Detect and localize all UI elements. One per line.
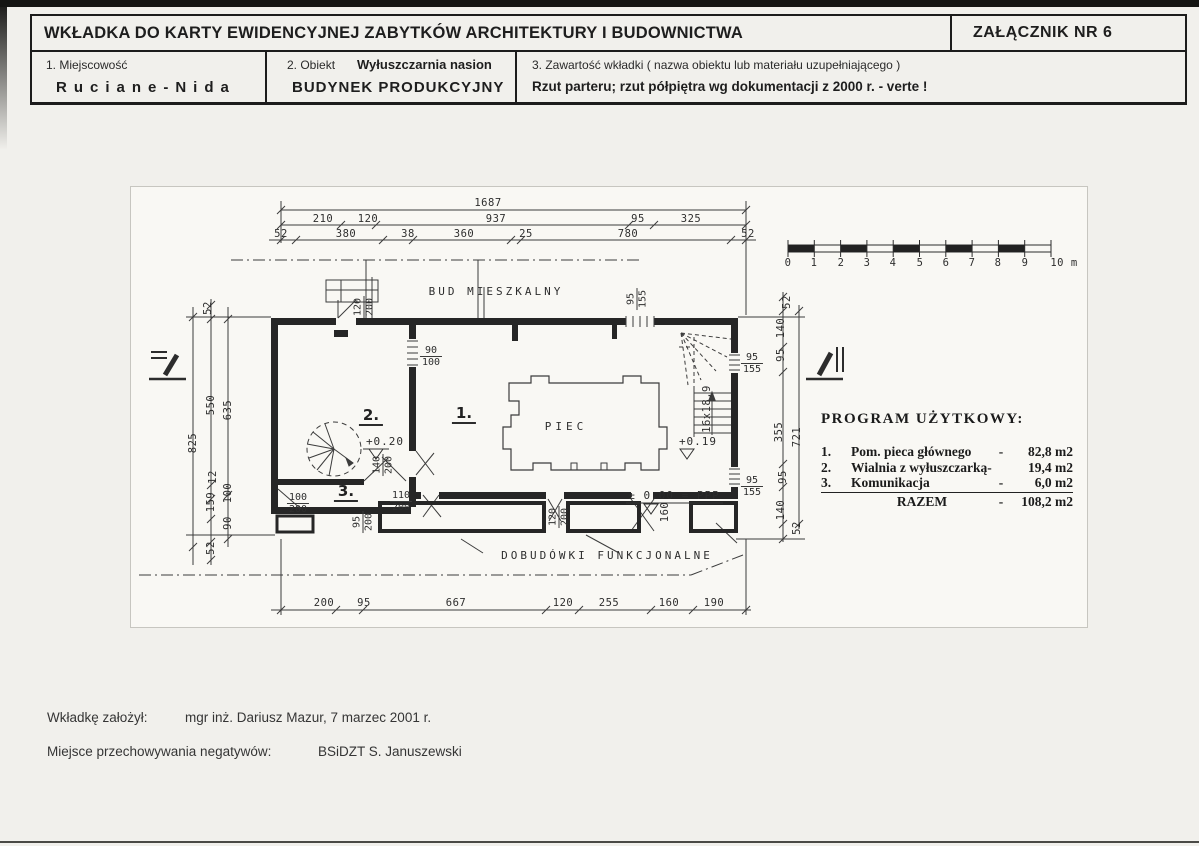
dim-label: 667 bbox=[446, 597, 466, 609]
frac-den: 200 bbox=[559, 506, 571, 528]
row-dash: - bbox=[993, 475, 1009, 491]
field1-label: 1. Miejscowość bbox=[46, 58, 127, 72]
neighbor-building-label: BUD MIESZKALNY bbox=[429, 285, 564, 298]
dim-label: 95 bbox=[775, 348, 787, 362]
dim-label: 52 bbox=[202, 301, 214, 315]
opening-size-90-100: 90100 bbox=[420, 345, 442, 368]
dim-label: 95 bbox=[357, 597, 371, 609]
furnace-detail2 bbox=[601, 463, 607, 470]
program-title: PROGRAM UŻYTKOWY: bbox=[821, 411, 1073, 428]
row-number: 3. bbox=[821, 475, 851, 491]
furnace-label: PIEC bbox=[545, 420, 588, 433]
dim-label: 825 bbox=[187, 433, 199, 453]
header-border-top bbox=[30, 14, 1187, 16]
dim-label: 120 bbox=[358, 213, 378, 225]
door-size-140-200: 140200 bbox=[372, 454, 395, 476]
dim-label: 52 bbox=[205, 541, 217, 555]
dim-label: 159 bbox=[205, 492, 217, 512]
scale-tick: 1 bbox=[811, 257, 818, 269]
scanned-record-card: { "header": { "title": "WKŁADKA DO KARTY… bbox=[0, 0, 1199, 846]
frac-den: 155 bbox=[741, 486, 763, 498]
header-rule-mid bbox=[30, 50, 1187, 52]
room-1-label: 1. bbox=[452, 405, 476, 424]
header-divider-attachment bbox=[950, 14, 952, 52]
dim-label: 255 bbox=[599, 597, 619, 609]
scan-edge-top bbox=[0, 0, 1199, 7]
scan-edge-bottom bbox=[0, 841, 1199, 843]
header-divider-col1 bbox=[265, 52, 267, 104]
level-plus019: +0.19 bbox=[679, 435, 717, 448]
level-zero-ppp: ± 0.00 = PPP bbox=[628, 489, 719, 502]
frac-num: 110 bbox=[390, 490, 412, 501]
window-hatches bbox=[407, 316, 740, 484]
dim-label: 937 bbox=[486, 213, 506, 225]
frac-den: 200 bbox=[390, 501, 412, 513]
field2-label: 2. Obiekt bbox=[287, 58, 335, 72]
dim-label: 721 bbox=[791, 427, 803, 447]
field3-label: 3. Zawartość wkładki ( nazwa obiektu lub… bbox=[532, 58, 900, 72]
frac-den: 200 bbox=[363, 511, 375, 533]
door-size-120-200-bottom: 120200 bbox=[548, 506, 571, 528]
scan-edge-left bbox=[0, 0, 7, 150]
dim-label: 95 bbox=[777, 470, 789, 484]
field3-value: Rzut parteru; rzut półpiętra wg dokument… bbox=[532, 79, 927, 94]
dim-label: 200 bbox=[314, 597, 334, 609]
header-border-right bbox=[1185, 14, 1187, 104]
door-size-100-200: 100200 bbox=[287, 492, 309, 515]
dim-label: 140 bbox=[775, 318, 787, 338]
frac-den: 200 bbox=[287, 503, 309, 515]
dim-label: 325 bbox=[681, 213, 701, 225]
program-row-1: 1. Pom. pieca głównego - 82,8 m2 bbox=[821, 444, 1073, 460]
header-border-bottom bbox=[30, 102, 1187, 105]
window-size-95-155-right2: 95155 bbox=[741, 475, 763, 498]
frac-num: 95 bbox=[626, 291, 637, 307]
row-value: 82,8 m2 bbox=[1009, 444, 1073, 460]
total-dash: - bbox=[993, 494, 1009, 510]
scale-tick: 5 bbox=[917, 257, 924, 269]
dim-label: 550 bbox=[205, 395, 217, 415]
row-value: 6,0 m2 bbox=[1009, 475, 1073, 491]
program-table: PROGRAM UŻYTKOWY: 1. Pom. pieca głównego… bbox=[821, 411, 1073, 509]
furnace-detail bbox=[571, 463, 577, 470]
level-plus020: +0.20 bbox=[366, 435, 404, 448]
door-size-95-200: 95200 bbox=[352, 511, 375, 533]
dim-label: 210 bbox=[313, 213, 333, 225]
frac-num: 95 bbox=[352, 514, 363, 530]
opening-size-160: 160 bbox=[659, 502, 671, 522]
scale-bar bbox=[788, 240, 1051, 257]
negatives-label: Miejsce przechowywania negatywów: bbox=[47, 744, 271, 759]
dim-label: 1687 bbox=[474, 197, 501, 209]
dim-label: 360 bbox=[454, 228, 474, 240]
row-name: Wialnia z wyłuszczarką- bbox=[851, 460, 993, 476]
row-name: Komunikacja bbox=[851, 475, 993, 491]
room-2-label: 2. bbox=[359, 407, 383, 426]
dim-label: 52 bbox=[791, 521, 803, 535]
row-number: 1. bbox=[821, 444, 851, 460]
program-row-2: 2. Wialnia z wyłuszczarką- 19,4 m2 bbox=[821, 460, 1073, 476]
dim-label: 25 bbox=[519, 228, 533, 240]
total-value: 108,2 m2 bbox=[1009, 494, 1073, 510]
frac-num: 140 bbox=[372, 454, 383, 476]
scale-tick: 3 bbox=[864, 257, 871, 269]
dim-label: 380 bbox=[336, 228, 356, 240]
program-row-3: 3. Komunikacja - 6,0 m2 bbox=[821, 475, 1073, 493]
dim-label: 355 bbox=[773, 422, 785, 442]
row-number: 2. bbox=[821, 460, 851, 476]
window-size-95-155-top: 95155 bbox=[626, 288, 649, 310]
dim-label: 140 bbox=[775, 500, 787, 520]
row-name: Pom. pieca głównego bbox=[851, 444, 993, 460]
frac-den: 155 bbox=[741, 363, 763, 375]
dim-label: 52 bbox=[781, 295, 793, 309]
dim-label: 100 bbox=[222, 483, 234, 503]
frac-den: 100 bbox=[420, 356, 442, 368]
dim-label: 780 bbox=[618, 228, 638, 240]
scale-tick: 4 bbox=[890, 257, 897, 269]
dim-label: 160 bbox=[659, 597, 679, 609]
scale-tick: 6 bbox=[943, 257, 950, 269]
scale-end-label: 10 m bbox=[1050, 257, 1077, 269]
dim-label: 38 bbox=[401, 228, 415, 240]
frac-den: 200 bbox=[364, 296, 376, 318]
dim-label: 190 bbox=[704, 597, 724, 609]
header-divider-col2 bbox=[515, 52, 517, 104]
program-total-row: RAZEM - 108,2 m2 bbox=[821, 494, 1073, 510]
total-label: RAZEM bbox=[851, 494, 993, 510]
scale-tick: 7 bbox=[969, 257, 976, 269]
dim-label: 95 bbox=[631, 213, 645, 225]
dim-label: 52 bbox=[741, 228, 755, 240]
frac-num: 120 bbox=[548, 506, 559, 528]
header-border-left bbox=[30, 14, 32, 104]
window-size-95-155-right1: 95155 bbox=[741, 352, 763, 375]
founder-value: mgr inż. Dariusz Mazur, 7 marzec 2001 r. bbox=[185, 710, 431, 725]
founder-label: Wkładkę założył: bbox=[47, 710, 148, 725]
row-dash: - bbox=[993, 444, 1009, 460]
dim-label: 12 bbox=[207, 470, 219, 484]
spiral-stair bbox=[307, 422, 361, 476]
floor-plan-sheet: 1687 210 120 937 95 325 52 380 38 360 25… bbox=[130, 186, 1088, 628]
frac-den: 155 bbox=[637, 288, 649, 310]
scale-tick: 8 bbox=[995, 257, 1002, 269]
frac-num: 95 bbox=[744, 475, 760, 486]
opening-size-120-200-top: 120200 bbox=[353, 296, 376, 318]
stair-riser-note: 16x18,9 bbox=[701, 385, 713, 433]
frac-den: 200 bbox=[383, 454, 395, 476]
dim-label: 52 bbox=[274, 228, 288, 240]
form-title: WKŁADKA DO KARTY EWIDENCYJNEJ ZABYTKÓW A… bbox=[44, 24, 743, 43]
frac-num: 95 bbox=[744, 352, 760, 363]
field1-value: Ruciane-Nida bbox=[56, 79, 236, 96]
frac-num: 120 bbox=[353, 296, 364, 318]
door-size-110-200: 110200 bbox=[390, 490, 412, 513]
field2-subvalue: Wyłuszczarnia nasion bbox=[357, 57, 492, 72]
dim-label: 120 bbox=[553, 597, 573, 609]
scale-tick: 0 bbox=[785, 257, 792, 269]
annexes-label: DOBUDÓWKI FUNKCJONALNE bbox=[501, 549, 713, 562]
dim-label: 90 bbox=[222, 516, 234, 530]
frac-num: 90 bbox=[423, 345, 439, 356]
dim-label: 635 bbox=[222, 400, 234, 420]
scale-tick: 2 bbox=[838, 257, 845, 269]
attachment-number: ZAŁĄCZNIK NR 6 bbox=[973, 24, 1112, 42]
room-3-label: 3. bbox=[334, 483, 358, 502]
section-markers bbox=[149, 347, 843, 379]
scale-tick: 9 bbox=[1022, 257, 1029, 269]
negatives-value: BSiDZT S. Januszewski bbox=[318, 744, 462, 759]
frac-num: 100 bbox=[287, 492, 309, 503]
row-value: 19,4 m2 bbox=[1009, 460, 1073, 476]
field2-value: BUDYNEK PRODUKCYJNY bbox=[292, 79, 504, 96]
